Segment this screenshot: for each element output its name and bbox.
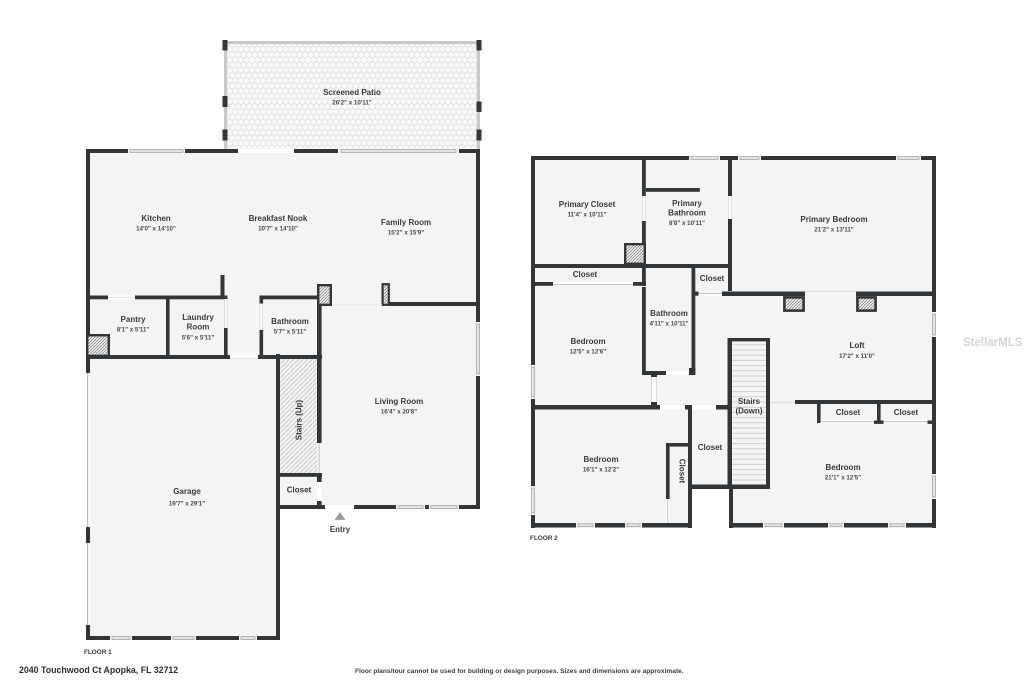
svg-text:21'2" x 13'11": 21'2" x 13'11" (814, 227, 854, 234)
svg-text:16'1" x 12'2": 16'1" x 12'2" (583, 467, 619, 474)
svg-text:21'1" x 12'5": 21'1" x 12'5" (825, 475, 861, 482)
svg-text:Kitchen: Kitchen (141, 214, 170, 223)
svg-text:8'1" x 5'11": 8'1" x 5'11" (117, 327, 150, 334)
svg-text:Bathroom: Bathroom (650, 309, 688, 318)
svg-text:Garage: Garage (173, 487, 201, 496)
svg-text:Screened Patio: Screened Patio (323, 88, 381, 97)
svg-text:Floor plans/tour cannot be use: Floor plans/tour cannot be used for buil… (355, 668, 684, 675)
svg-text:Primary Bedroom: Primary Bedroom (800, 215, 867, 224)
svg-text:26'2" x 10'11": 26'2" x 10'11" (332, 100, 372, 107)
svg-text:Primary: Primary (672, 199, 702, 208)
svg-text:Closet: Closet (700, 274, 725, 283)
svg-text:Bedroom: Bedroom (570, 337, 605, 346)
svg-text:Bathroom: Bathroom (668, 209, 706, 218)
svg-text:Primary Closet: Primary Closet (559, 200, 616, 209)
svg-text:(Down): (Down) (735, 407, 762, 416)
svg-text:StellarMLS: StellarMLS (963, 337, 1023, 349)
svg-text:5'6" x 5'11": 5'6" x 5'11" (182, 335, 215, 342)
svg-text:Bedroom: Bedroom (583, 455, 618, 464)
svg-text:Closet: Closet (678, 459, 687, 484)
svg-text:8'8" x 10'11": 8'8" x 10'11" (669, 220, 705, 227)
svg-text:5'7" x 5'11": 5'7" x 5'11" (274, 329, 307, 336)
svg-text:Stairs (Up): Stairs (Up) (295, 399, 304, 440)
svg-text:Room: Room (187, 323, 210, 332)
svg-text:15'2" x 15'9": 15'2" x 15'9" (388, 230, 424, 237)
svg-text:Closet: Closet (287, 486, 312, 495)
svg-text:11'4" x 10'11": 11'4" x 10'11" (567, 212, 606, 219)
svg-text:Closet: Closet (573, 270, 598, 279)
svg-text:Entry: Entry (330, 525, 351, 534)
svg-text:14'0" x 14'10": 14'0" x 14'10" (136, 226, 176, 233)
svg-text:Breakfast Nook: Breakfast Nook (249, 214, 308, 223)
svg-text:Bedroom: Bedroom (825, 463, 860, 472)
svg-text:10'7" x 14'10": 10'7" x 14'10" (258, 226, 298, 233)
svg-text:FLOOR 1: FLOOR 1 (84, 649, 112, 656)
svg-text:2040 Touchwood Ct Apopka, FL 3: 2040 Touchwood Ct Apopka, FL 32712 (19, 665, 178, 675)
svg-text:Closet: Closet (698, 443, 723, 452)
svg-text:Pantry: Pantry (121, 315, 146, 324)
svg-text:Bathroom: Bathroom (271, 317, 309, 326)
svg-text:Closet: Closet (836, 408, 861, 417)
svg-text:19'7" x 29'1": 19'7" x 29'1" (169, 501, 205, 508)
svg-text:Living Room: Living Room (375, 397, 423, 406)
svg-text:16'4" x 20'8": 16'4" x 20'8" (381, 409, 417, 416)
svg-text:4'11" x 10'11": 4'11" x 10'11" (649, 321, 688, 328)
svg-text:Stairs: Stairs (738, 397, 761, 406)
svg-text:Laundry: Laundry (182, 313, 214, 322)
svg-text:Loft: Loft (849, 341, 864, 350)
svg-text:FLOOR 2: FLOOR 2 (530, 535, 558, 542)
svg-text:12'5" x 12'6": 12'5" x 12'6" (570, 349, 606, 356)
svg-text:Closet: Closet (894, 408, 919, 417)
svg-text:Family Room: Family Room (381, 218, 431, 227)
svg-text:17'2" x 11'0": 17'2" x 11'0" (839, 353, 875, 360)
